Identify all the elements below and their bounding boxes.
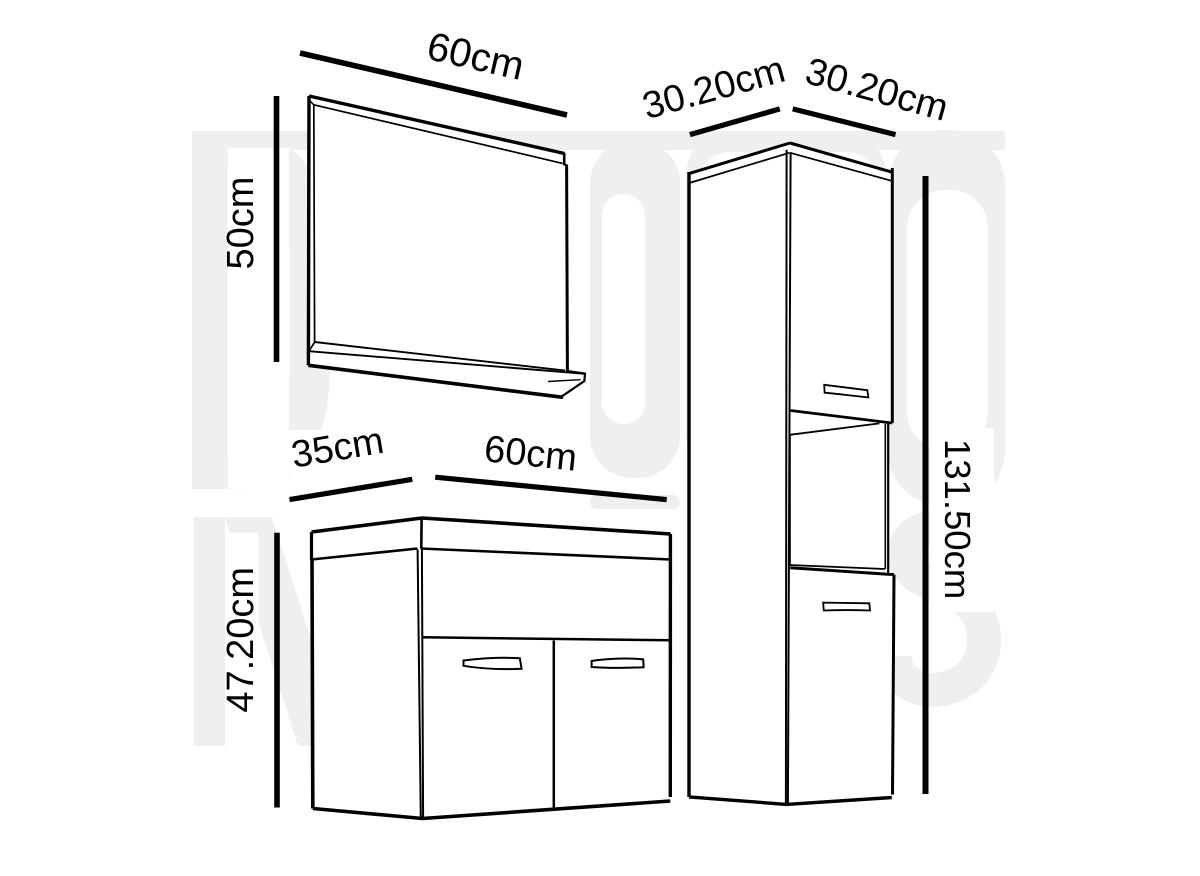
svg-text:131.50cm: 131.50cm bbox=[937, 439, 978, 599]
svg-text:50cm: 50cm bbox=[220, 177, 262, 270]
svg-text:47.20cm: 47.20cm bbox=[220, 567, 262, 713]
